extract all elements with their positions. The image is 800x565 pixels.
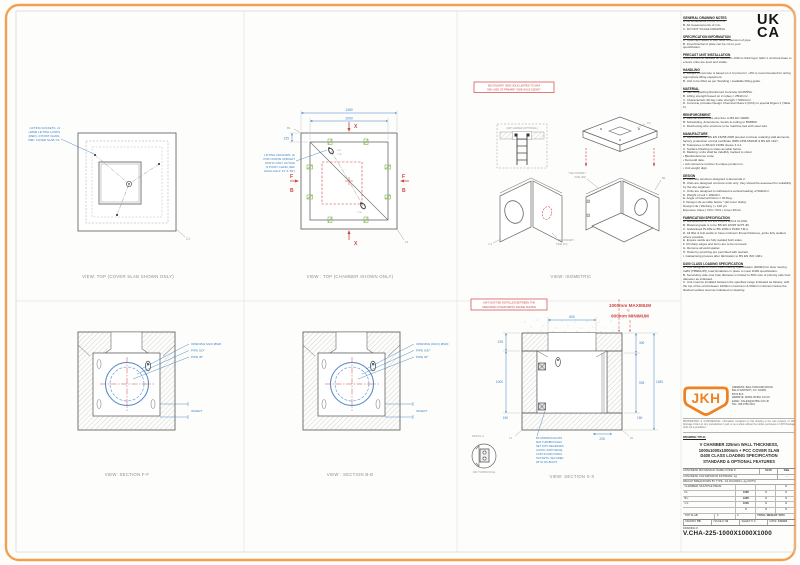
view-section-xx: UNIT MUST BE INSTALLED BETWEEN THE SPECI… [471,299,663,479]
view-top-cover-slab: C1 LIFTING SOCKETS, x3 +WIRE LIFTING LOO… [28,126,190,279]
svg-text:B: B [290,188,294,194]
svg-text:B: B [402,188,406,194]
svg-text:PIPE OD*: PIPE OD* [191,349,206,353]
note-section: MANUFACTURE A. Manufacture to BS EN 1525… [683,132,794,171]
ground-speckle [525,320,614,332]
svg-text:SIDE (F1): SIDE (F1) [556,242,568,246]
svg-text:X: X [354,124,358,130]
svg-text:C1: C1 [647,121,651,125]
svg-text:925: 925 [639,381,645,385]
svg-text:UNIT MUST BE INSTALLED BETWEEN: UNIT MUST BE INSTALLED BETWEEN THE [483,301,536,305]
chamber-note: LIFTING ANCHORS, 3x FOR ONSITE UPRIGHT S… [264,153,296,173]
svg-text:EACH HALF 'F1' & 'B1'): EACH HALF 'F1' & 'B1') [264,169,295,173]
jkh-logo: JKH [683,386,729,416]
svg-text:REF: COVER SLAB 'C1': REF: COVER SLAB 'C1' [29,138,61,142]
svg-text:OPENING (MAX) Ø620: OPENING (MAX) Ø620 [416,342,449,346]
note-section: FABRICATION SPECIFICATION A. Manufacture… [683,216,794,259]
svg-text:600: 600 [569,315,575,319]
mix-label: CONCRETE MIX DESIGN: NAME /CODE #: [683,469,759,473]
note-section: DESIGN A. Concrete structure designed to… [683,174,794,213]
svg-text:B1: B1 [662,176,666,180]
svg-text:M20 TURNBUCKLES: M20 TURNBUCKLES [536,440,562,444]
proprietary-note: PROPRIETARY & CONFIDENTIAL: Information … [683,419,795,433]
notes-sections: GENERAL DRAWING NOTES A. All dimensions … [683,16,794,293]
issue-info-cell: ISSUE #: 01 [711,520,739,525]
note-section-body: A. Manufacture to BS EN 15258:2008 preca… [683,136,794,171]
svg-text:LIFT: LIFT [337,150,342,152]
svg-text:F1: F1 [488,242,492,246]
svg-text:CAST-IN M20 FIXING: CAST-IN M20 FIXING [536,452,562,456]
grp-ladder-option: GRP LADDER (OPTIONAL) [497,124,547,168]
view-caption: VIEW : SECTION B-B [327,472,374,477]
svg-text:GRP LADDER (OPTIONAL): GRP LADDER (OPTIONAL) [506,127,537,130]
svg-text:1000: 1000 [496,380,503,384]
drawing-title: V CHAMBER 225mm WALL THICKNESS, 1000x100… [683,439,795,469]
view-caption: VIEW: SECTION X-X [550,474,595,479]
svg-text:ALONG JOINT EDGE,: ALONG JOINT EDGE, [536,448,563,452]
svg-text:1450: 1450 [656,380,663,384]
view-caption: VIEW: ISOMETRIC [551,274,592,279]
cover-slab-label: C1 [186,237,190,241]
grid-lines [16,11,681,552]
svg-text:PIPE ID*: PIPE ID* [191,355,204,359]
svg-text:DETAIL A: DETAIL A [472,434,484,438]
svg-text:225: 225 [284,137,290,141]
svg-text:OPENING MAX Ø620: OPENING MAX Ø620 [191,342,222,346]
svg-text:B1: B1 [287,126,291,130]
note-section: REINFORCEMENT A. Reinforcement fibre str… [683,113,794,129]
svg-text:BT-SPANNSCHLOSS: BT-SPANNSCHLOSS [536,436,562,440]
issue-info-cell: DATE: 120124 [767,520,795,525]
ukca-ca: CA [757,27,794,40]
company-info: ADDRESS: BALLYMACARN ROAD, BALLYNAHINCH,… [732,386,773,407]
note-section-body: A. Weight of concrete is based on 2.4 to… [683,72,794,84]
notes-panel: UK CA GENERAL DRAWING NOTES A. All dimen… [683,13,794,384]
note-section-body: A. Unit designed to D400 class loading s… [683,266,794,293]
total-weight: TOTAL WEIGHT: 5870 [755,514,795,519]
note-section-body: A. Self compacting Reinforced Concrete S… [683,91,794,110]
svg-text:F1: F1 [405,240,409,244]
svg-text:F: F [290,174,293,180]
svg-text:225: 225 [599,437,605,441]
svg-text:SPECIFIED COVER DEPTH RANGE SH: SPECIFIED COVER DEPTH RANGE SHOWN [482,305,536,309]
svg-text:SET INTO RECESSES: SET INTO RECESSES [536,444,564,448]
svg-text:225: 225 [498,340,504,344]
svg-text:PIPE ID*: PIPE ID* [416,355,429,359]
note-section-body: Units should be bedded on minimum 100mm … [683,57,794,65]
svg-text:150: 150 [637,416,643,420]
svg-text:SOCKETS, SECURED: SOCKETS, SECURED [536,456,564,460]
note-section-body: A. Concrete structure designed to Euroco… [683,178,794,213]
iso-chamber-f1 [500,178,562,242]
svg-text:1000mm MAXIMUM: 1000mm MAXIMUM [609,303,651,308]
issue-info-cell: SHEET #: 1 [739,520,767,525]
iso-chamber-b1 [586,178,659,242]
company-header: JKH ADDRESS: BALLYMACARN ROAD, BALLYNAHI… [683,386,795,419]
sheet-inner-frame [16,11,795,552]
weight-table: CHAMBER, MULTIPLE PIECE: 0 F1: 1985 0 0 … [683,485,795,514]
svg-text:1450: 1450 [345,108,353,112]
svg-text:X: X [354,241,358,247]
svg-text:SECONDARY SIDE HOLE LIMITED TO: SECONDARY SIDE HOLE LIMITED TO MAX [488,83,541,87]
note-section: PRECAST UNIT INSTALLATION Units should b… [683,53,794,65]
svg-text:INVERT: INVERT [191,409,202,413]
svg-text:* SECONDARY: * SECONDARY [556,238,574,242]
co2-label: CONCRETE CO2 EMISSION ESTIMATE: kg: [683,475,777,479]
svg-text:150: 150 [503,416,509,420]
view-section-bb: OPENING (MAX) Ø620 PIPE O/D* PIPE ID* IN… [303,332,449,477]
title-block: JKH ADDRESS: BALLYMACARN ROAD, BALLYNAHI… [683,386,795,537]
drawing-area: C1 LIFTING SOCKETS, x3 +WIRE LIFTING LOO… [0,0,800,565]
svg-text:* SECONDARY: * SECONDARY [568,171,586,175]
detail-a: DETAIL A M20 TURNBUCKLE [472,434,496,474]
co2-value: -- [777,475,795,479]
svg-text:TO: TO [626,310,629,313]
drawing-sheet: C1 LIFTING SOCKETS, x3 +WIRE LIFTING LOO… [0,0,800,565]
svg-text:B1: B1 [630,436,634,440]
ukca-logo: UK CA [757,14,794,46]
svg-text:PIPE O/D*: PIPE O/D* [416,349,431,353]
note-section-body: A. Manufacture to BS EN 1090-2 EXC2 CLAS… [683,220,794,259]
cover-slab-note: LIFTING SOCKETS, x3 +WIRE LIFTING LOOPS … [28,126,60,142]
drawing-number: V.CHA-225-1000X1000X1000 [683,530,795,537]
view-caption: VIEW: TOP (COVER SLAB SHOWN ONLY) [82,274,174,279]
mix-value-2: DBa [777,469,795,473]
svg-text:INVERT: INVERT [416,409,427,413]
note-section: HANDLING A. Weight of concrete is based … [683,68,794,84]
note-section: D400 CLASS LOADING SPECIFICATION A. Unit… [683,262,794,293]
view-caption: VIEW : TOP (CHAMBER SHOWN ONLY) [307,274,394,279]
svg-text:1000: 1000 [345,117,353,121]
svg-text:600mm MINIMUM: 600mm MINIMUM [611,314,649,319]
view-caption: VIEW: SECTION F-F [105,472,150,477]
svg-text:300: 300 [639,341,645,345]
svg-text:50% SIZE OF PRIMARY SIDE HOLE: 50% SIZE OF PRIMARY SIDE HOLE SIZING* [487,87,540,91]
mix-value-1: SC45 [759,469,777,473]
issue-info-cell: DRAWN: PK [683,520,711,525]
view-isometric: SECONDARY SIDE HOLE LIMITED TO MAX 50% S… [474,82,666,279]
view-section-ff: OPENING MAX Ø620 PIPE OD* PIPE ID* INVER… [78,332,222,477]
svg-text:M20 TURNBUCKLE: M20 TURNBUCKLE [473,471,496,474]
svg-text:SIDE (B1): SIDE (B1) [574,175,586,179]
turnbuckle-note: BT-SPANNSCHLOSS M20 TURNBUCKLES SET INTO… [536,436,564,464]
svg-text:CTR: CTR [357,212,362,214]
note-section-body: A. Reinforcement fibre structure to BS E… [683,117,794,129]
svg-text:CTR: CTR [337,154,342,156]
svg-text:WITH S/S BOLTS: WITH S/S BOLTS [536,460,558,464]
svg-text:F1: F1 [509,436,513,440]
view-top-chamber: LIFT CTR CTR 1450 1000 225 X [264,108,409,279]
iso-cover-slab [583,117,657,152]
note-section: MATERIAL A. Self compacting Reinforced C… [683,87,794,110]
svg-text:F: F [402,174,405,180]
issue-info-row: DRAWN: PK ISSUE #: 01 SHEET #: 1 DATE: 1… [683,520,795,526]
jkh-logo-text: JKH [691,391,720,406]
